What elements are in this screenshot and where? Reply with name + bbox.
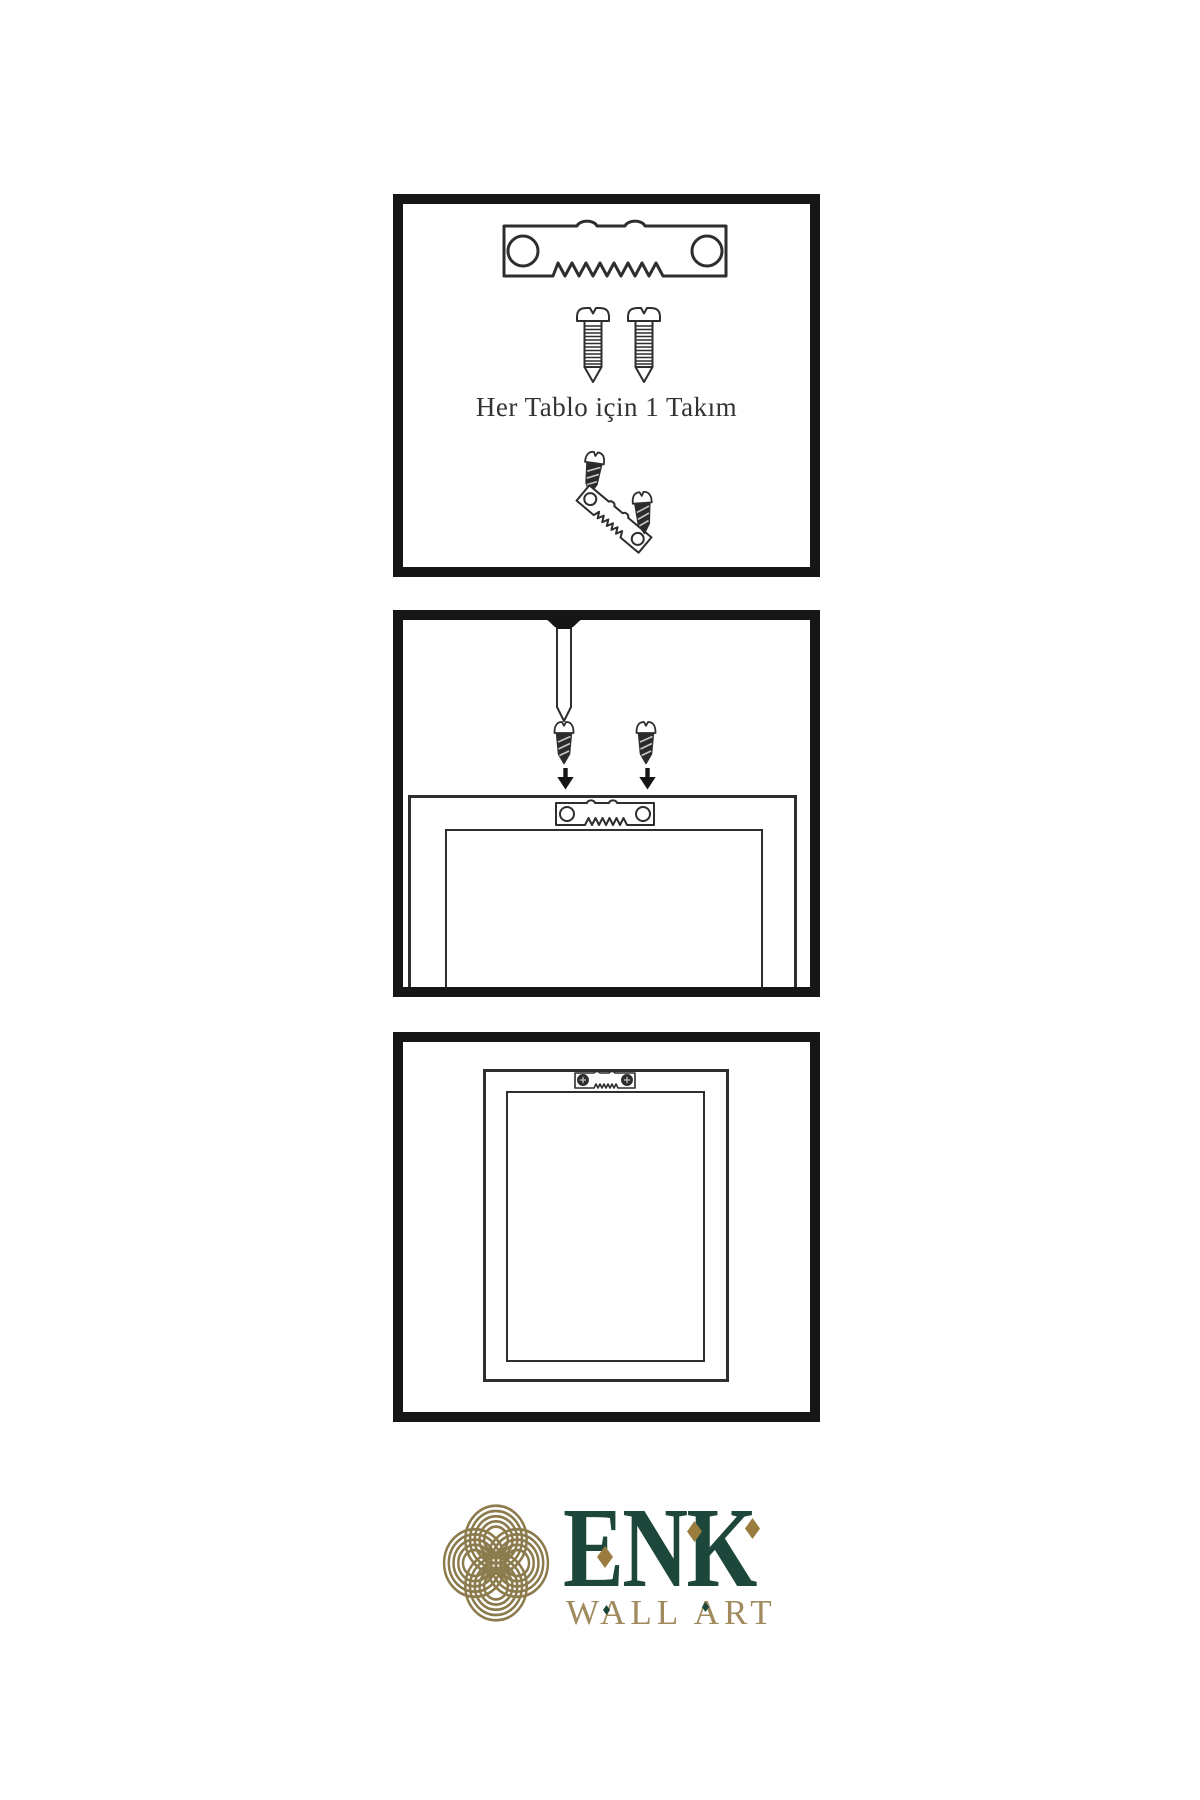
canvas-inner-outline: [445, 829, 763, 997]
mounted-sawtooth-hanger-icon: [573, 1071, 637, 1090]
canvas-inner-outline: [506, 1091, 705, 1362]
instruction-sheet: Her Tablo için 1 Takım: [0, 0, 1200, 1800]
arrow-down-icon: [557, 768, 574, 790]
sawtooth-hanger-icon: [497, 222, 733, 282]
panel-step-3-hang-frame: [393, 1032, 820, 1422]
sawtooth-hanger-icon: [553, 801, 657, 827]
tilted-screw-icon: [629, 489, 656, 537]
screw-icon: [573, 305, 613, 385]
dark-screw-icon: [552, 720, 576, 766]
panel-step-2-attach-hanger: [393, 610, 820, 997]
arrow-down-icon: [639, 768, 656, 790]
panel-step-1-hardware-set: Her Tablo için 1 Takım: [393, 194, 820, 577]
step1-caption: Her Tablo için 1 Takım: [403, 392, 810, 423]
brand-name: ENK: [563, 1491, 756, 1605]
dark-screw-icon: [634, 720, 658, 766]
screw-icon: [624, 305, 664, 385]
knot-logo-icon: [437, 1498, 555, 1628]
wall-nail-icon: [540, 614, 588, 722]
brand-tagline: WALL ART: [566, 1591, 777, 1635]
